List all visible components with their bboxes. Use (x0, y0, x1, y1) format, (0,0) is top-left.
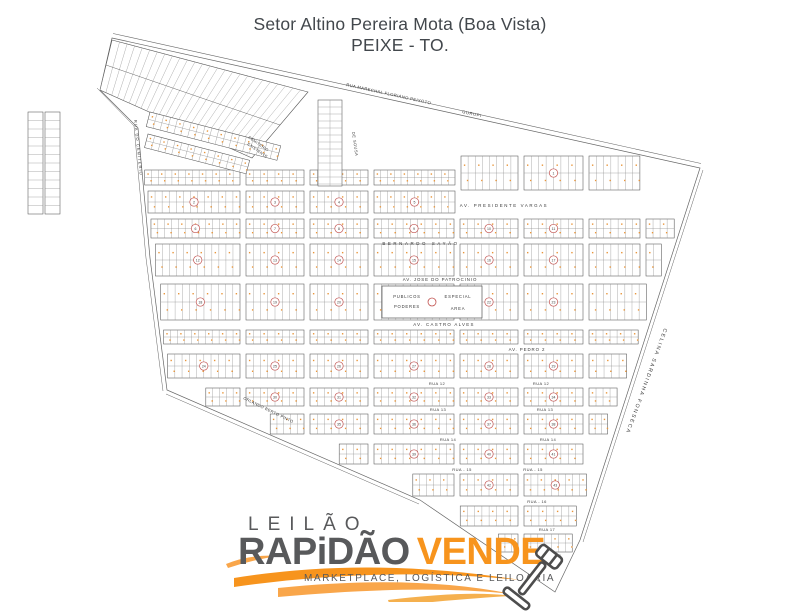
svg-text:41: 41 (552, 452, 556, 456)
street-label-rua-14: RUA 14 (540, 437, 557, 442)
svg-text:5: 5 (414, 200, 416, 204)
svg-text:33: 33 (487, 395, 491, 399)
svg-text:2: 2 (193, 200, 195, 204)
street-label-presidente-vargas: AV. PRESIDENTE VARGAS (460, 203, 548, 208)
street-label-rua-14: RUA 14 (440, 437, 457, 442)
street-label-rua-13: RUA 13 (430, 407, 447, 412)
page: { "title": { "line1": "Setor Altino Pere… (0, 0, 800, 600)
svg-text:14: 14 (337, 258, 341, 262)
street-label-castro-alves: AV. CASTRO ALVES (413, 322, 474, 327)
svg-text:20: 20 (337, 300, 341, 304)
street-label-cemiterio-road: RUA DO CEMITERIO (133, 120, 144, 176)
svg-text:32: 32 (412, 395, 416, 399)
street-label-rua-12: RUA 12 (429, 381, 446, 386)
svg-text:23: 23 (552, 300, 556, 304)
svg-text:9: 9 (413, 227, 415, 231)
svg-text:25: 25 (273, 364, 277, 368)
svg-text:19: 19 (273, 300, 277, 304)
svg-text:31: 31 (337, 395, 341, 399)
gavel-icon (490, 540, 580, 614)
special-area-block: PUBLICOSPODERESESPECIALAREA (382, 286, 482, 318)
svg-text:30: 30 (273, 395, 277, 399)
street-label-rua-16: RUA - 16 (527, 499, 547, 504)
svg-text:34: 34 (552, 395, 556, 399)
svg-text:17: 17 (552, 258, 556, 262)
special-block-text: PODERES (394, 304, 420, 309)
svg-text:13: 13 (273, 258, 277, 262)
svg-text:15: 15 (412, 258, 416, 262)
road-cemiterio-outer-line (97, 88, 163, 391)
subdivision-map: 1234567891011121314151617181920212223242… (0, 0, 800, 600)
svg-text:24: 24 (202, 364, 206, 368)
svg-text:28: 28 (487, 364, 491, 368)
svg-text:42: 42 (487, 483, 491, 487)
svg-text:29: 29 (552, 364, 556, 368)
svg-text:10: 10 (487, 227, 491, 231)
street-label-bernardo-sayao: BERNARDO SAYÃO (382, 241, 459, 246)
street-label-jose-patrocinio: AV. JOSE DO PATROCINIO (403, 277, 478, 282)
svg-text:1: 1 (553, 171, 555, 175)
svg-text:11: 11 (552, 227, 556, 231)
street-label-rua-15: RUA - 15 (452, 467, 472, 472)
svg-text:3: 3 (274, 200, 276, 204)
svg-text:7: 7 (274, 227, 276, 231)
svg-text:38: 38 (552, 422, 556, 426)
svg-text:36: 36 (412, 422, 416, 426)
street-label-rua-15: RUA - 15 (523, 467, 543, 472)
svg-text:22: 22 (487, 300, 491, 304)
street-label-de-sousa: DE SOUSA (351, 131, 359, 156)
svg-text:43: 43 (553, 483, 557, 487)
svg-text:40: 40 (487, 452, 491, 456)
svg-text:6: 6 (195, 227, 197, 231)
left-strips (28, 112, 60, 214)
special-block-text: ESPECIAL (445, 294, 472, 299)
svg-text:16: 16 (487, 258, 491, 262)
special-block-text: AREA (451, 306, 466, 311)
auction-logo: LEILÃO RAPiDÃOVENDE MARKETPLACE, LOGÍSTI… (232, 514, 584, 600)
svg-text:37: 37 (487, 422, 491, 426)
street-label-pedro-ii: AV. PEDRO 2 (509, 347, 546, 352)
svg-text:35: 35 (337, 422, 341, 426)
logo-brand-rapidao: RAPiDÃO (238, 531, 410, 573)
svg-text:26: 26 (337, 364, 341, 368)
street-label-rua-12: RUA 12 (533, 381, 550, 386)
special-block-text: PUBLICOS (393, 294, 421, 299)
street-label-marechal: RUA MARECHAL FLORIANO PEIXOTO (346, 82, 432, 105)
svg-text:18: 18 (198, 300, 202, 304)
svg-text:39: 39 (412, 452, 416, 456)
street-label-rua-13: RUA 13 (537, 407, 554, 412)
svg-text:4: 4 (338, 200, 340, 204)
svg-text:12: 12 (196, 258, 200, 262)
svg-text:8: 8 (338, 227, 340, 231)
svg-text:27: 27 (412, 364, 416, 368)
street-label-gurupi: GURUPI (462, 109, 482, 118)
